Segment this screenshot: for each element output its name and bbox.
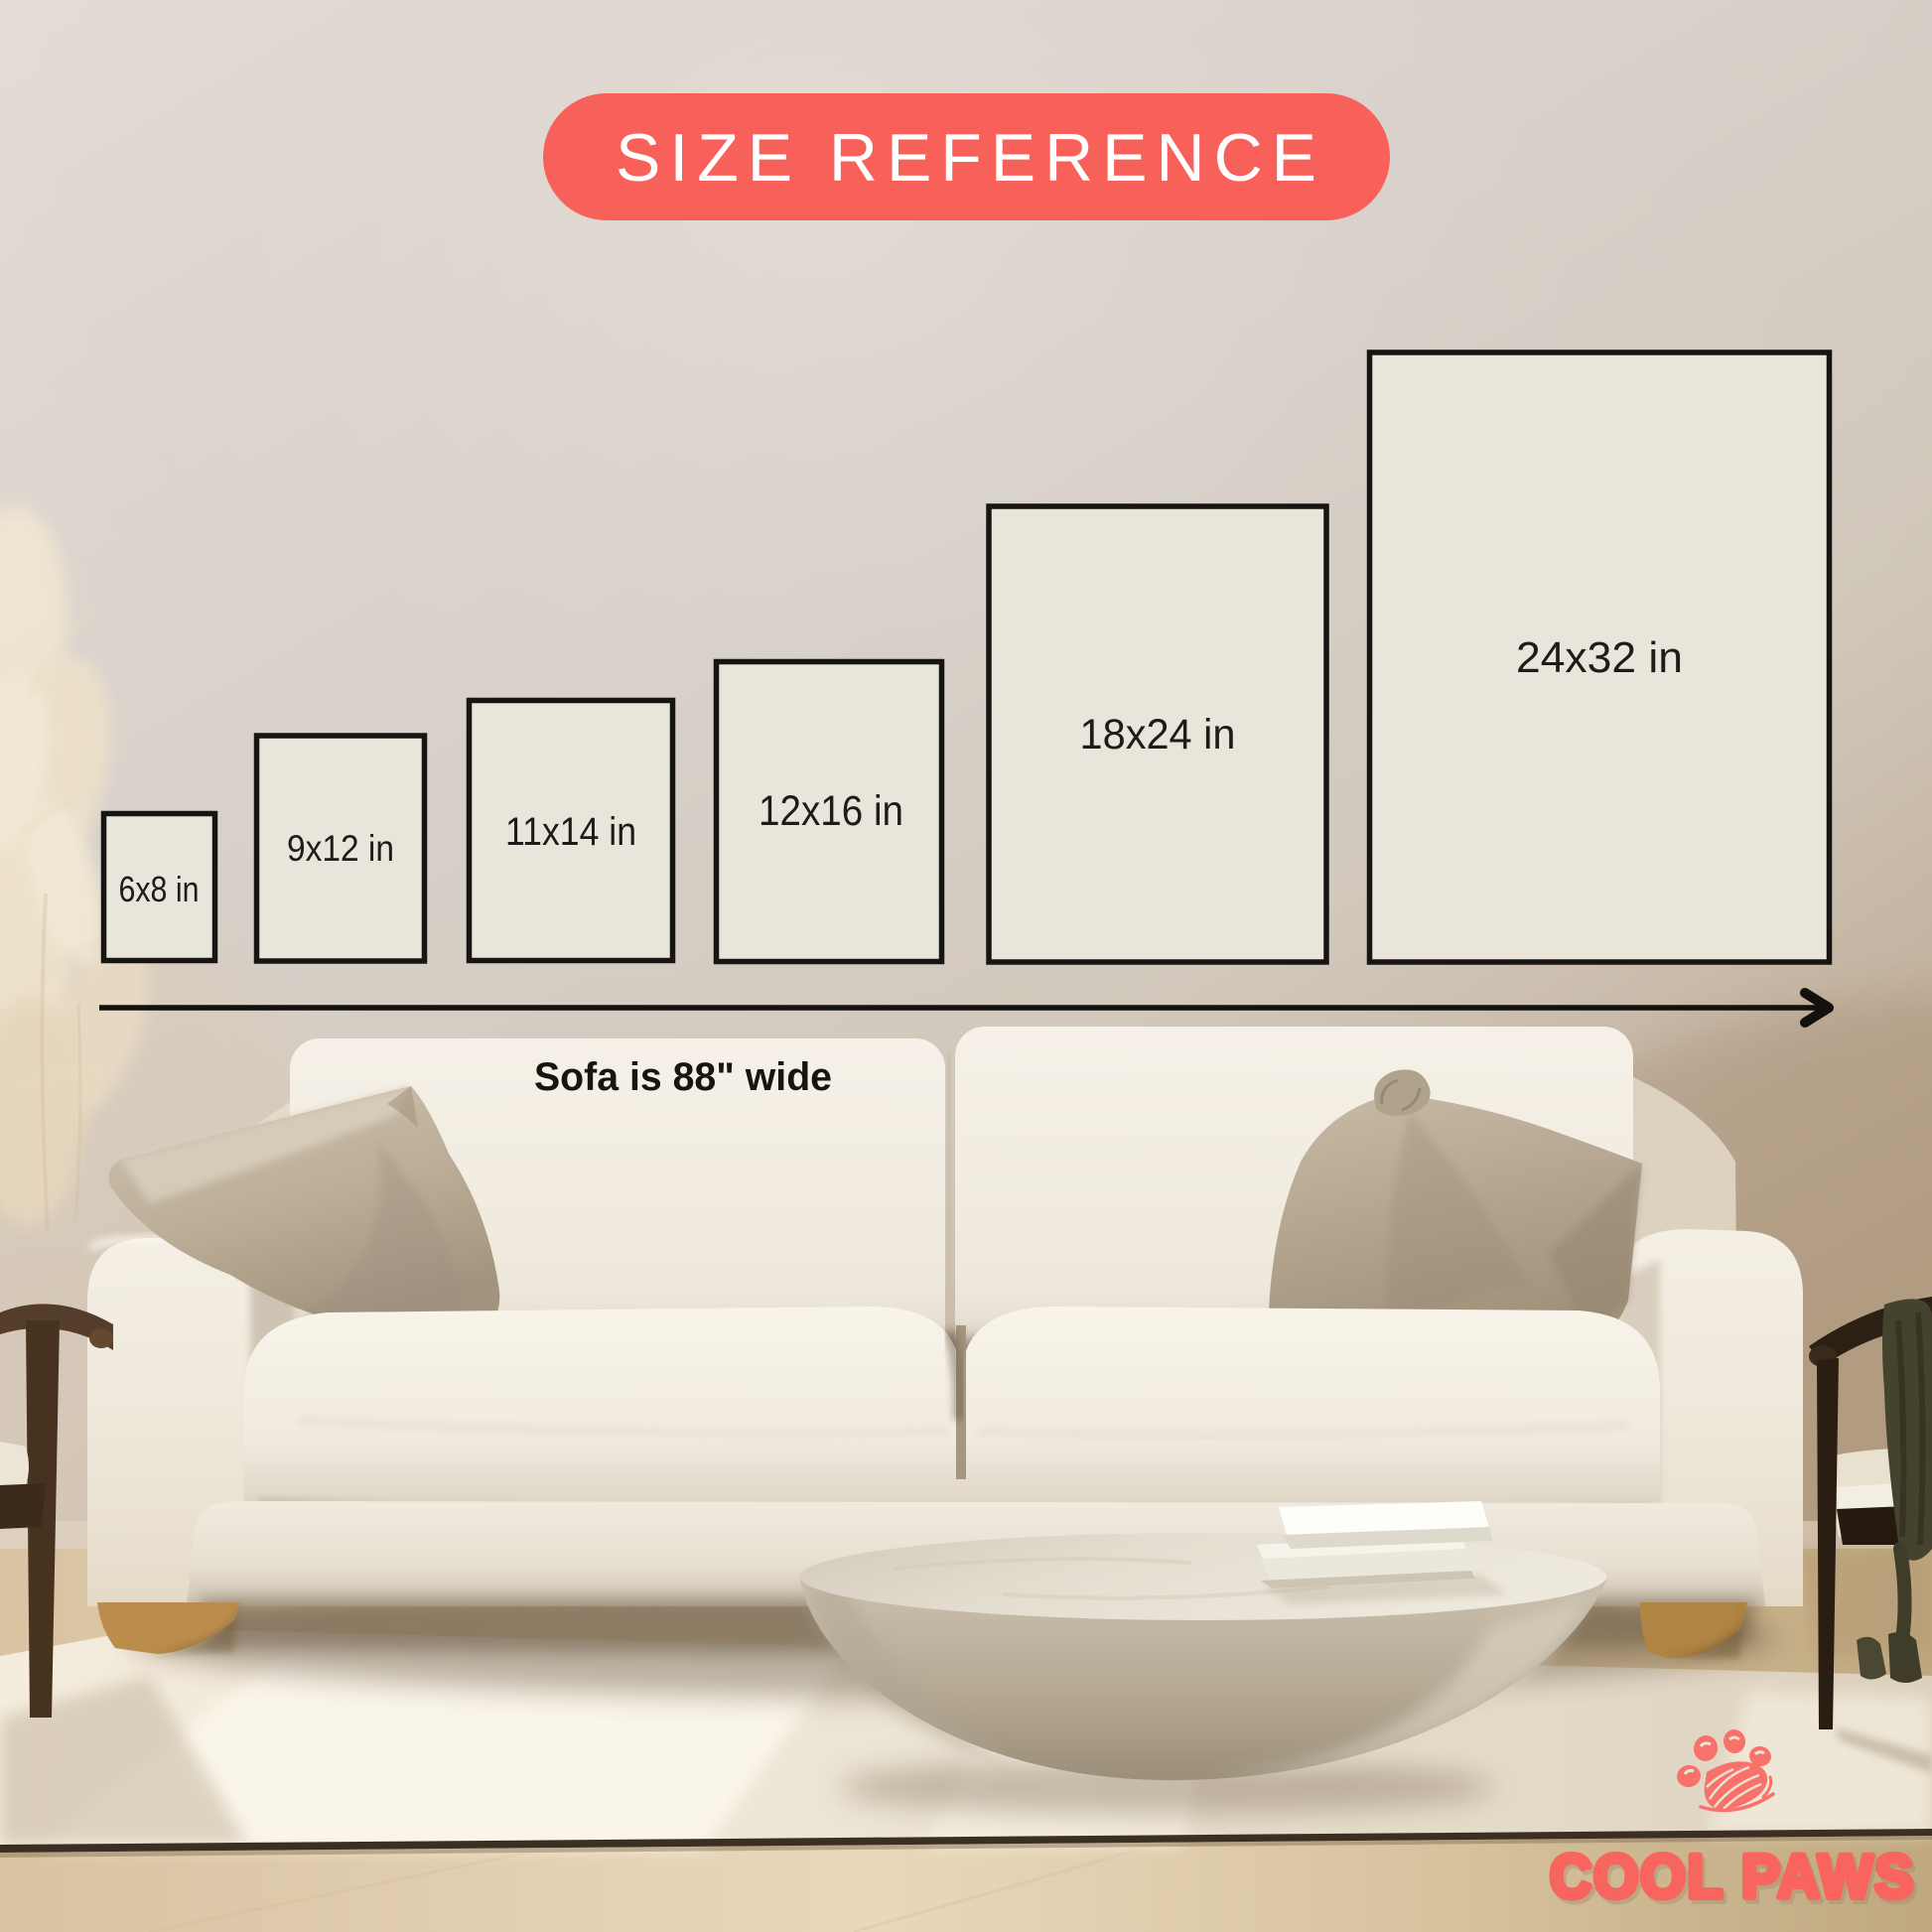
svg-text:COOL PAWS: COOL PAWS [1550,1843,1915,1910]
svg-text:12x16 in: 12x16 in [759,787,903,835]
svg-text:18x24 in: 18x24 in [1080,711,1236,759]
svg-text:9x12 in: 9x12 in [287,828,394,869]
svg-text:Sofa is 88" wide: Sofa is 88" wide [534,1055,832,1099]
svg-text:11x14 in: 11x14 in [505,810,636,854]
svg-text:6x8 in: 6x8 in [119,869,200,909]
svg-text:24x32 in: 24x32 in [1516,633,1683,682]
